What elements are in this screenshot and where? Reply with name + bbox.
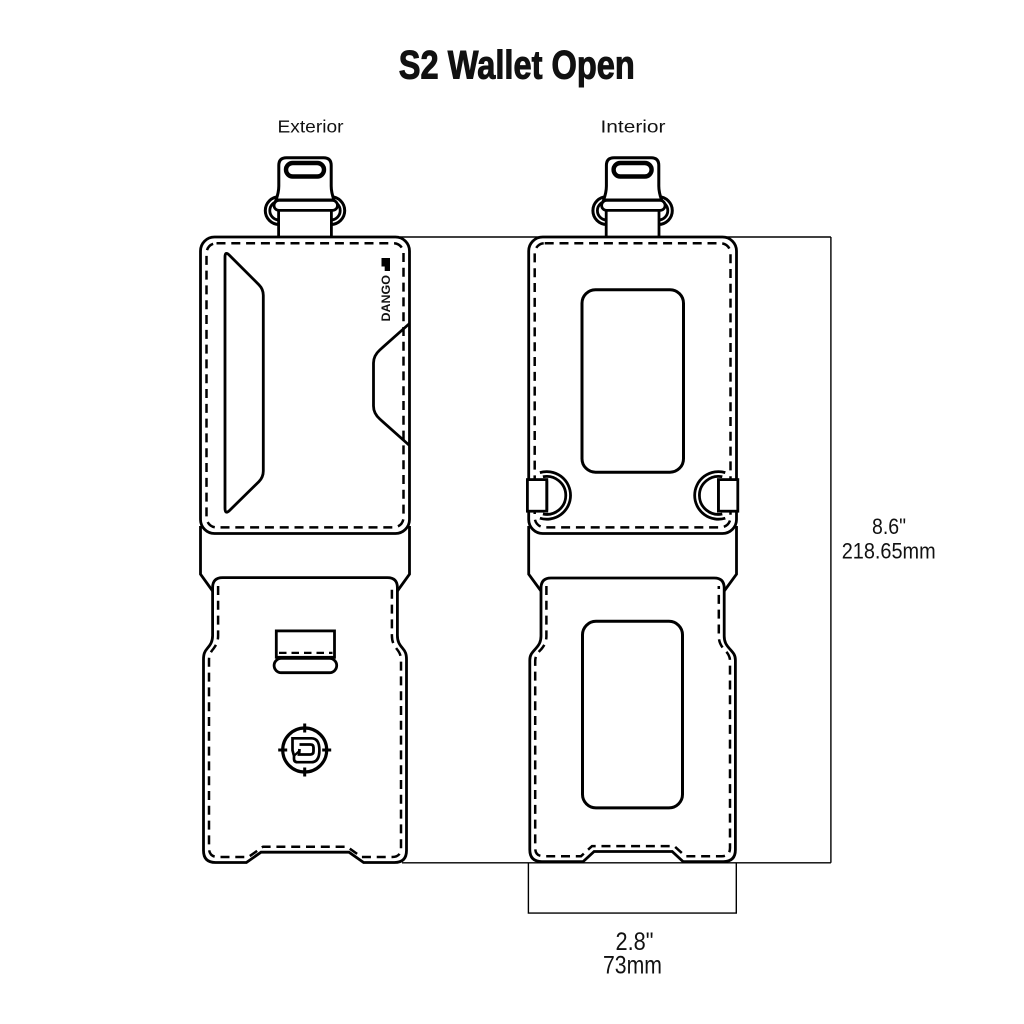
svg-text:Interior: Interior — [601, 117, 666, 137]
svg-text:S2 Wallet Open: S2 Wallet Open — [399, 43, 635, 87]
svg-text:8.6": 8.6" — [872, 514, 906, 539]
svg-text:73mm: 73mm — [603, 952, 662, 980]
svg-text:218.65mm: 218.65mm — [842, 538, 936, 563]
svg-text:DANGO: DANGO — [381, 275, 393, 322]
svg-text:Exterior: Exterior — [278, 117, 344, 137]
